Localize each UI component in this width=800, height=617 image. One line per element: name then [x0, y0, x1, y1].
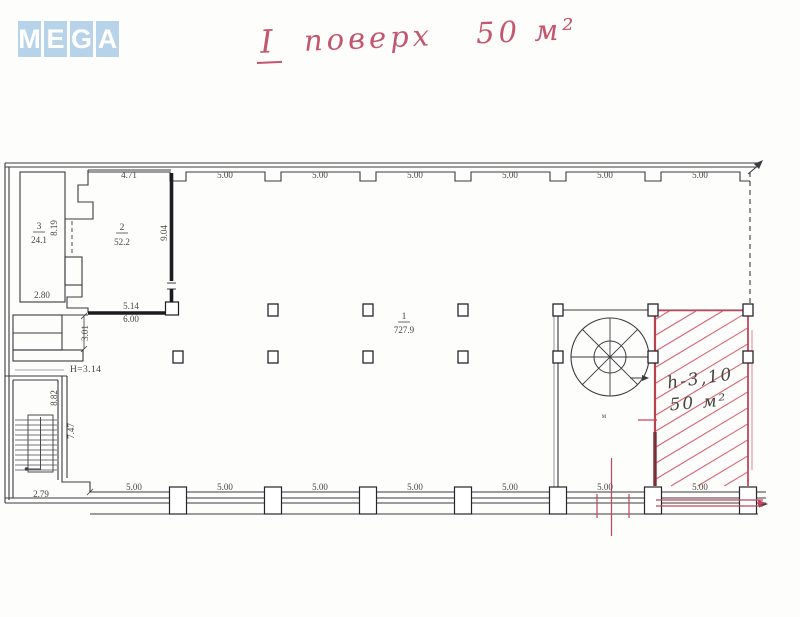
room3-number: 3: [37, 222, 42, 232]
room3-side-dim: 8.19: [49, 220, 59, 236]
stair-dim-b: 7.47: [66, 423, 76, 439]
room2-area: 52.2: [114, 237, 130, 247]
dim-top-1: 5.00: [217, 170, 233, 180]
entry-depth-dim: 3.01: [80, 325, 90, 341]
dim-bottom-2: 5.00: [312, 482, 328, 492]
red-zone-area-label: 50 м²: [669, 391, 728, 416]
ceiling-height-note: H=3.14: [70, 365, 101, 375]
room2-side-dim: 9.04: [159, 225, 169, 241]
scanned-floorplan-page: M E G A I поверх 50 м²: [0, 0, 800, 617]
floor-plan: 4.71 5.00 5.00 5.00 5.00 5.00 5.00 5.00 …: [0, 0, 800, 617]
red-zone-height-label: h-3,10: [666, 365, 735, 394]
room2-bottom-dim-a: 5.14: [123, 301, 139, 311]
hall-area: 727.9: [394, 325, 415, 335]
room3-area: 24.1: [31, 235, 47, 245]
stair-dim-a: 8.82: [49, 390, 59, 406]
dim-top-5: 5.00: [597, 170, 613, 180]
dim-top-3: 5.00: [407, 170, 423, 180]
heavy-walls: [88, 173, 179, 315]
stair-treads: [15, 420, 57, 470]
room2-number: 2: [120, 223, 125, 233]
spiral-stair-mark: м: [602, 412, 607, 420]
dim-bottom-5: 5.00: [597, 482, 613, 492]
dim-top-6: 5.00: [692, 170, 708, 180]
dim-top-0: 4.71: [121, 170, 137, 180]
hall-number: 1: [402, 312, 407, 322]
dim-top-4: 5.00: [502, 170, 518, 180]
room2-bottom-dim-b: 6.00: [123, 314, 139, 324]
dim-top-2: 5.00: [312, 170, 328, 180]
plan-texts: 4.71 5.00 5.00 5.00 5.00 5.00 5.00 5.00 …: [31, 170, 735, 499]
dim-bottom-3: 5.00: [407, 482, 423, 492]
dim-bottom-4: 5.00: [502, 482, 518, 492]
dim-bottom-0: 5.00: [126, 482, 142, 492]
stair-width-dim: 2.79: [33, 489, 49, 499]
room3-width-dim: 2.80: [34, 290, 50, 300]
dim-bottom-6: 5.00: [692, 482, 708, 492]
dim-bottom-1: 5.00: [217, 482, 233, 492]
